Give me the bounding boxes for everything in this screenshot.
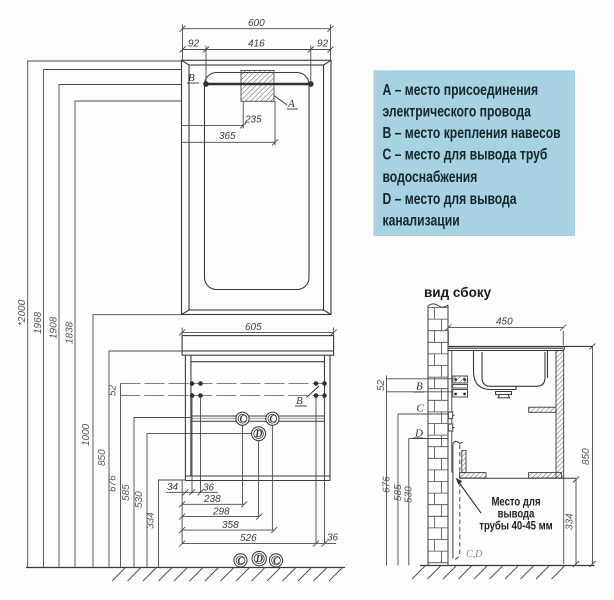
svg-text:С – место для вывода труб: С – место для вывода труб <box>383 146 548 164</box>
svg-text:585: 585 <box>393 484 404 501</box>
svg-text:1968: 1968 <box>33 311 44 334</box>
svg-text:298: 298 <box>212 507 230 518</box>
svg-text:530: 530 <box>404 486 415 503</box>
svg-text:C: C <box>238 556 245 567</box>
svg-text:416: 416 <box>248 39 265 50</box>
svg-text:C,D: C,D <box>466 549 483 560</box>
svg-text:850: 850 <box>97 449 108 466</box>
svg-text:трубы 40-45 мм: трубы 40-45 мм <box>479 520 553 533</box>
svg-text:36: 36 <box>327 533 339 544</box>
svg-text:вид сбоку: вид сбоку <box>424 285 492 300</box>
svg-text:C: C <box>273 556 280 567</box>
svg-text:238: 238 <box>203 494 221 505</box>
svg-text:450: 450 <box>496 317 513 328</box>
svg-text:676: 676 <box>108 475 119 492</box>
svg-text:D: D <box>255 554 263 565</box>
svg-text:530: 530 <box>134 491 145 508</box>
svg-text:334: 334 <box>146 512 157 529</box>
svg-text:D: D <box>254 429 262 440</box>
svg-text:365: 365 <box>219 131 236 142</box>
svg-text:676: 676 <box>382 476 393 493</box>
svg-text:526: 526 <box>240 533 257 544</box>
svg-text:605: 605 <box>245 322 262 333</box>
svg-text:C: C <box>240 414 247 425</box>
svg-text:92: 92 <box>317 39 329 50</box>
svg-text:B: B <box>416 381 423 393</box>
svg-text:92: 92 <box>188 39 200 50</box>
svg-text:А – место присоединения: А – место присоединения <box>383 81 539 99</box>
svg-text:C: C <box>269 414 276 425</box>
svg-text:52: 52 <box>108 384 119 396</box>
svg-text:1908: 1908 <box>49 316 60 339</box>
svg-text:52: 52 <box>376 379 387 391</box>
svg-text:A: A <box>287 98 295 110</box>
svg-text:C: C <box>417 403 425 415</box>
svg-text:36: 36 <box>203 483 215 494</box>
svg-text:*2000: *2000 <box>17 299 28 326</box>
svg-text:D – место для вывода: D – место для вывода <box>383 190 517 208</box>
svg-text:электрического провода: электрического провода <box>383 103 531 121</box>
svg-text:358: 358 <box>222 520 239 531</box>
svg-text:850: 850 <box>581 448 592 465</box>
svg-text:334: 334 <box>565 513 576 530</box>
svg-text:B: B <box>296 395 303 407</box>
svg-text:34: 34 <box>167 482 179 493</box>
svg-text:В – место крепления навесов: В – место крепления навесов <box>383 124 561 142</box>
svg-text:1838: 1838 <box>65 321 76 344</box>
svg-text:235: 235 <box>244 115 262 126</box>
svg-text:водоснабжения: водоснабжения <box>383 168 478 186</box>
svg-text:585: 585 <box>121 484 132 501</box>
svg-text:1000: 1000 <box>81 423 92 446</box>
svg-text:600: 600 <box>248 18 265 29</box>
svg-text:B: B <box>188 72 195 84</box>
svg-text:канализации: канализации <box>383 212 460 230</box>
